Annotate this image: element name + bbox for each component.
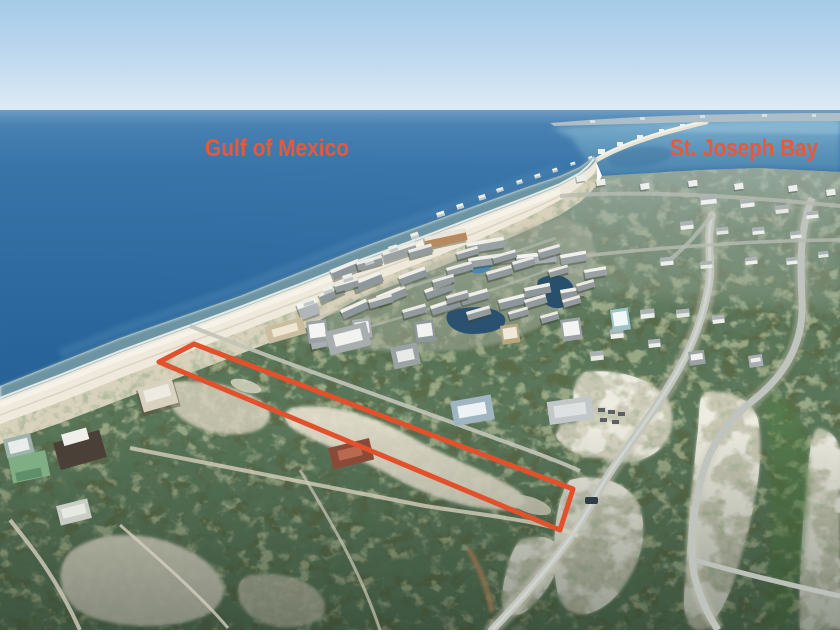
svg-text:Gulf of Mexico: Gulf of Mexico	[205, 135, 349, 162]
svg-text:St. Joseph Bay: St. Joseph Bay	[670, 135, 819, 162]
